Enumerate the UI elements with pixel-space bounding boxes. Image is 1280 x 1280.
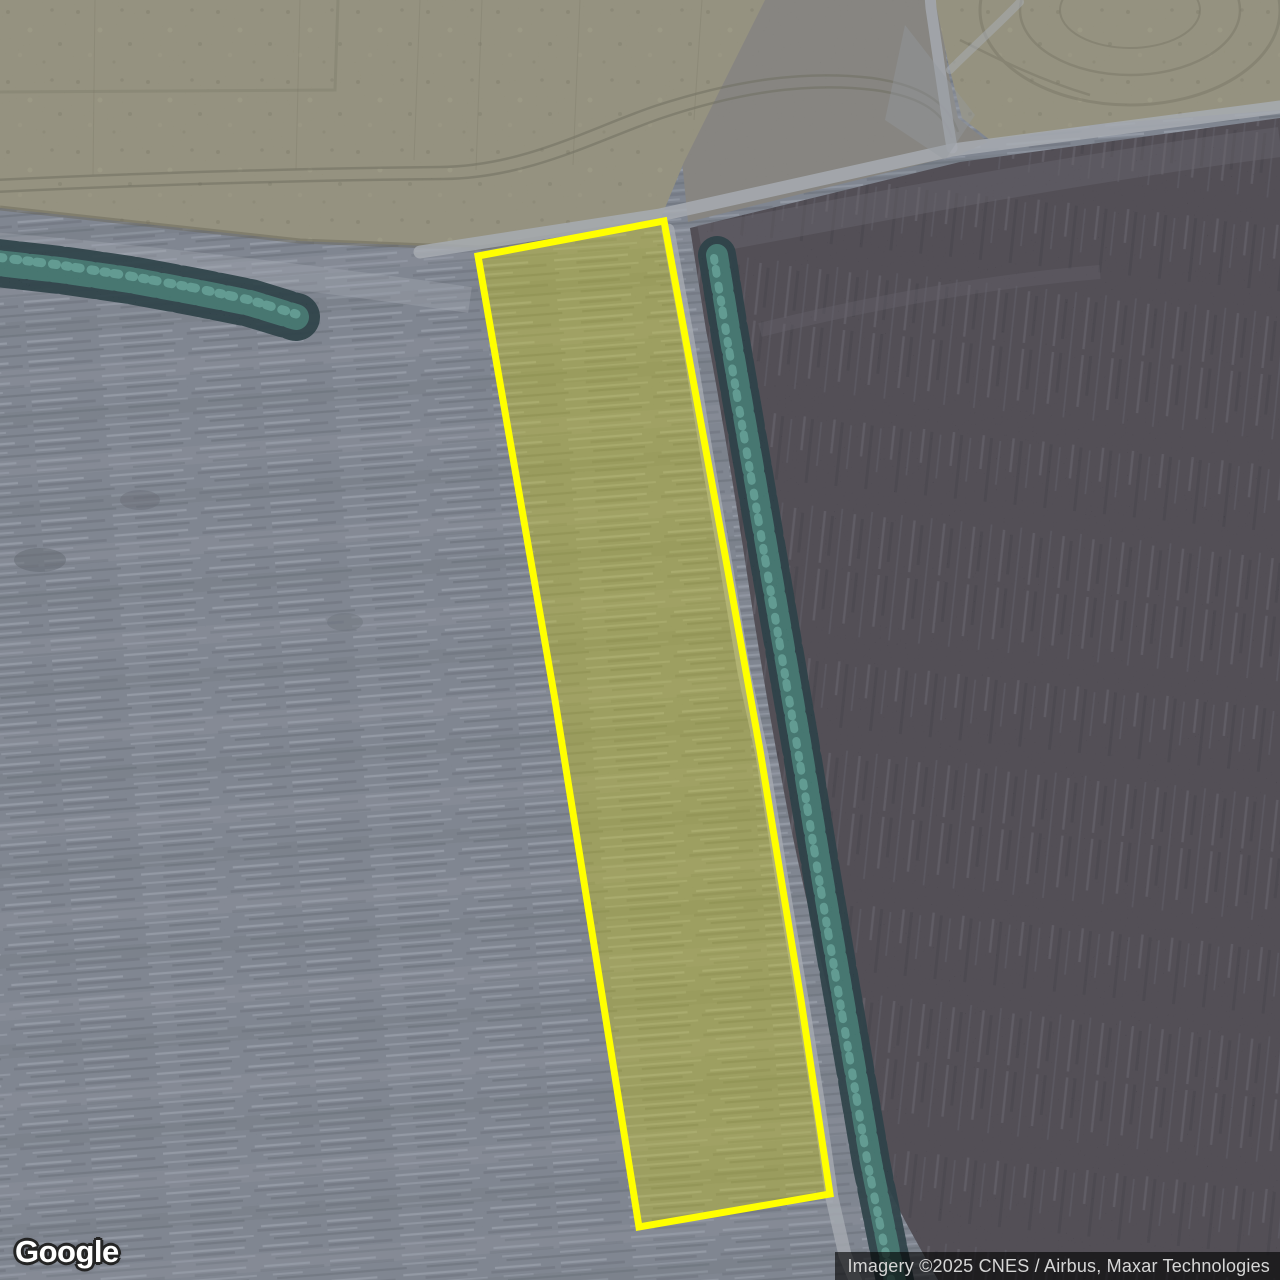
satellite-map-canvas[interactable]: Google Imagery ©2025 CNES / Airbus, Maxa… — [0, 0, 1280, 1280]
attribution-bar: Imagery ©2025 CNES / Airbus, Maxar Techn… — [835, 1252, 1280, 1280]
google-logo[interactable]: Google — [15, 1234, 119, 1270]
parcel-highlight-polygon[interactable] — [478, 221, 830, 1227]
highlight-overlay — [0, 0, 1280, 1280]
attribution-text: Imagery ©2025 CNES / Airbus, Maxar Techn… — [847, 1256, 1270, 1277]
